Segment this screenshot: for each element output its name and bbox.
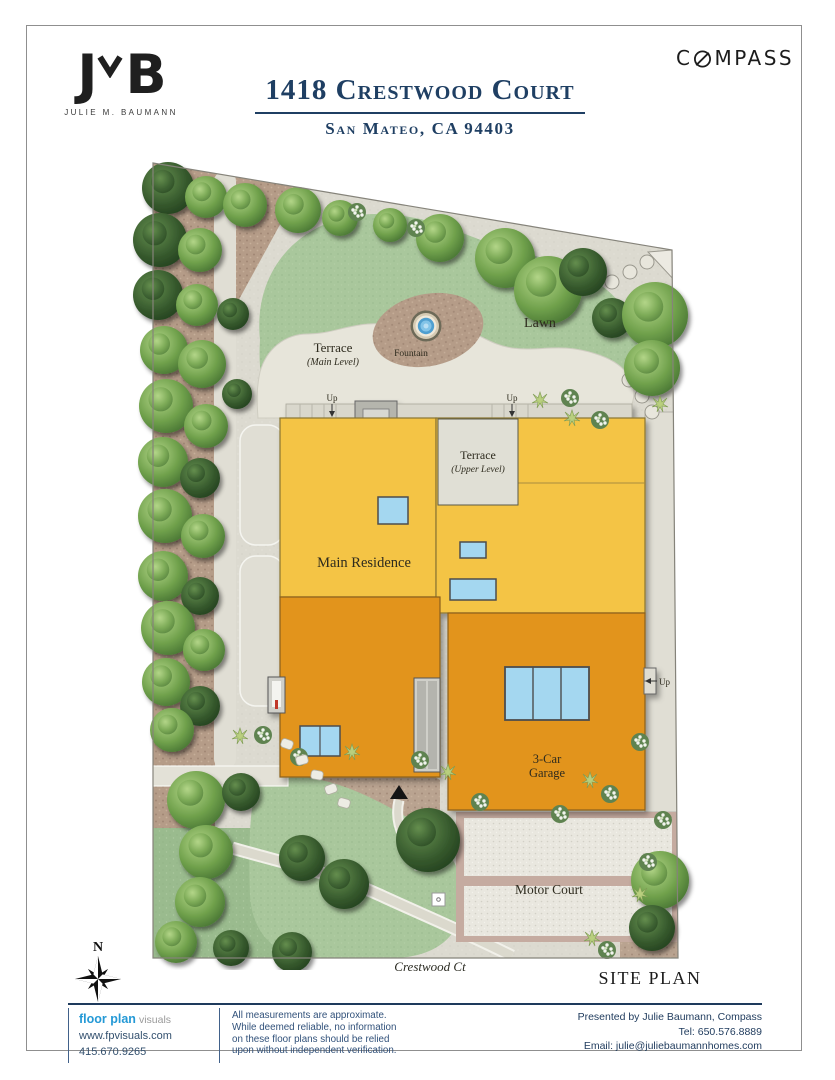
terrace-main-sub-label: (Main Level) <box>307 357 360 368</box>
north-label: N <box>70 940 126 956</box>
agent-tel: Tel: 650.576.8889 <box>578 1025 762 1040</box>
jmb-logo-mark: J B <box>56 40 186 102</box>
terrace-upper-sub-label: (Upper Level) <box>451 464 505 475</box>
garage-label-1: 3-Car <box>533 752 562 766</box>
jmb-chevron-icon <box>97 54 123 78</box>
disclaimer: All measurements are approximate. While … <box>220 1008 397 1057</box>
presented-by-block: Presented by Julie Baumann, Compass Tel:… <box>578 1008 762 1054</box>
fp-phone: 415.670.9265 <box>79 1045 171 1061</box>
jmb-logo: J B JULIE M. BAUMANN <box>56 40 186 117</box>
garage-label-2: Garage <box>529 766 566 780</box>
terrace-upper-area <box>438 419 518 505</box>
compass-slashed-o-icon <box>692 48 713 69</box>
lawn-label: Lawn <box>524 316 556 331</box>
street-label: Crestwood Ct <box>330 959 530 975</box>
page-title: 1418 Crestwood Court <box>255 74 584 114</box>
up-label-1: Up <box>327 393 338 403</box>
presented-by: Presented by Julie Baumann, Compass <box>578 1010 762 1025</box>
compass-rose-icon <box>74 956 122 1002</box>
site-plan-drawing: Lawn Terrace (Main Level) Fountain Terra… <box>130 150 700 970</box>
disclaimer-line: on these floor plans should be relied <box>232 1034 397 1046</box>
jmb-letter-j: J <box>77 48 95 102</box>
page-subtitle: San Mateo, CA 94403 <box>180 119 660 139</box>
disclaimer-line: All measurements are approximate. <box>232 1010 397 1022</box>
right-walkway <box>645 412 678 812</box>
terrace-main-label: Terrace <box>314 340 353 355</box>
disclaimer-line: While deemed reliable, no information <box>232 1022 397 1034</box>
compass-logo-rest: MPASS <box>714 46 794 70</box>
floorplan-visuals-logo: floor planvisuals <box>79 1010 171 1029</box>
main-residence-label: Main Residence <box>317 555 411 571</box>
fountain <box>411 311 442 342</box>
agent-email[interactable]: Email: julie@juliebaumannhomes.com <box>578 1039 762 1054</box>
jmb-logo-name: JULIE M. BAUMANN <box>56 108 186 117</box>
building-footprints <box>268 401 656 810</box>
jmb-letter-b: B <box>125 48 164 102</box>
up-label-2: Up <box>507 393 518 403</box>
fp-brand-gray: visuals <box>139 1014 171 1026</box>
title-block: 1418 Crestwood Court San Mateo, CA 94403 <box>180 74 660 139</box>
sheet-title: SITE PLAN <box>555 968 745 989</box>
compass-logo: C MPASS <box>676 46 794 70</box>
fp-website[interactable]: www.fpvisuals.com <box>79 1029 171 1045</box>
compass-logo-c: C <box>676 46 692 70</box>
terrace-upper-label: Terrace <box>460 448 496 462</box>
motor-court-label: Motor Court <box>515 882 583 897</box>
footer: floor planvisuals www.fpvisuals.com 415.… <box>68 1008 762 1063</box>
disclaimer-line: upon without independent verification. <box>232 1045 397 1057</box>
up-label-3: Up <box>659 677 670 687</box>
terrace-steps <box>286 404 632 418</box>
compass-rose: N <box>70 940 126 1007</box>
fp-brand-blue: floor plan <box>79 1012 136 1026</box>
floorplan-visuals-block: floor planvisuals www.fpvisuals.com 415.… <box>68 1008 181 1063</box>
page: { "header": { "logo_left": "J", "logo_ri… <box>0 0 835 1080</box>
footer-divider-rule <box>68 1003 762 1005</box>
fountain-label: Fountain <box>394 349 428 359</box>
